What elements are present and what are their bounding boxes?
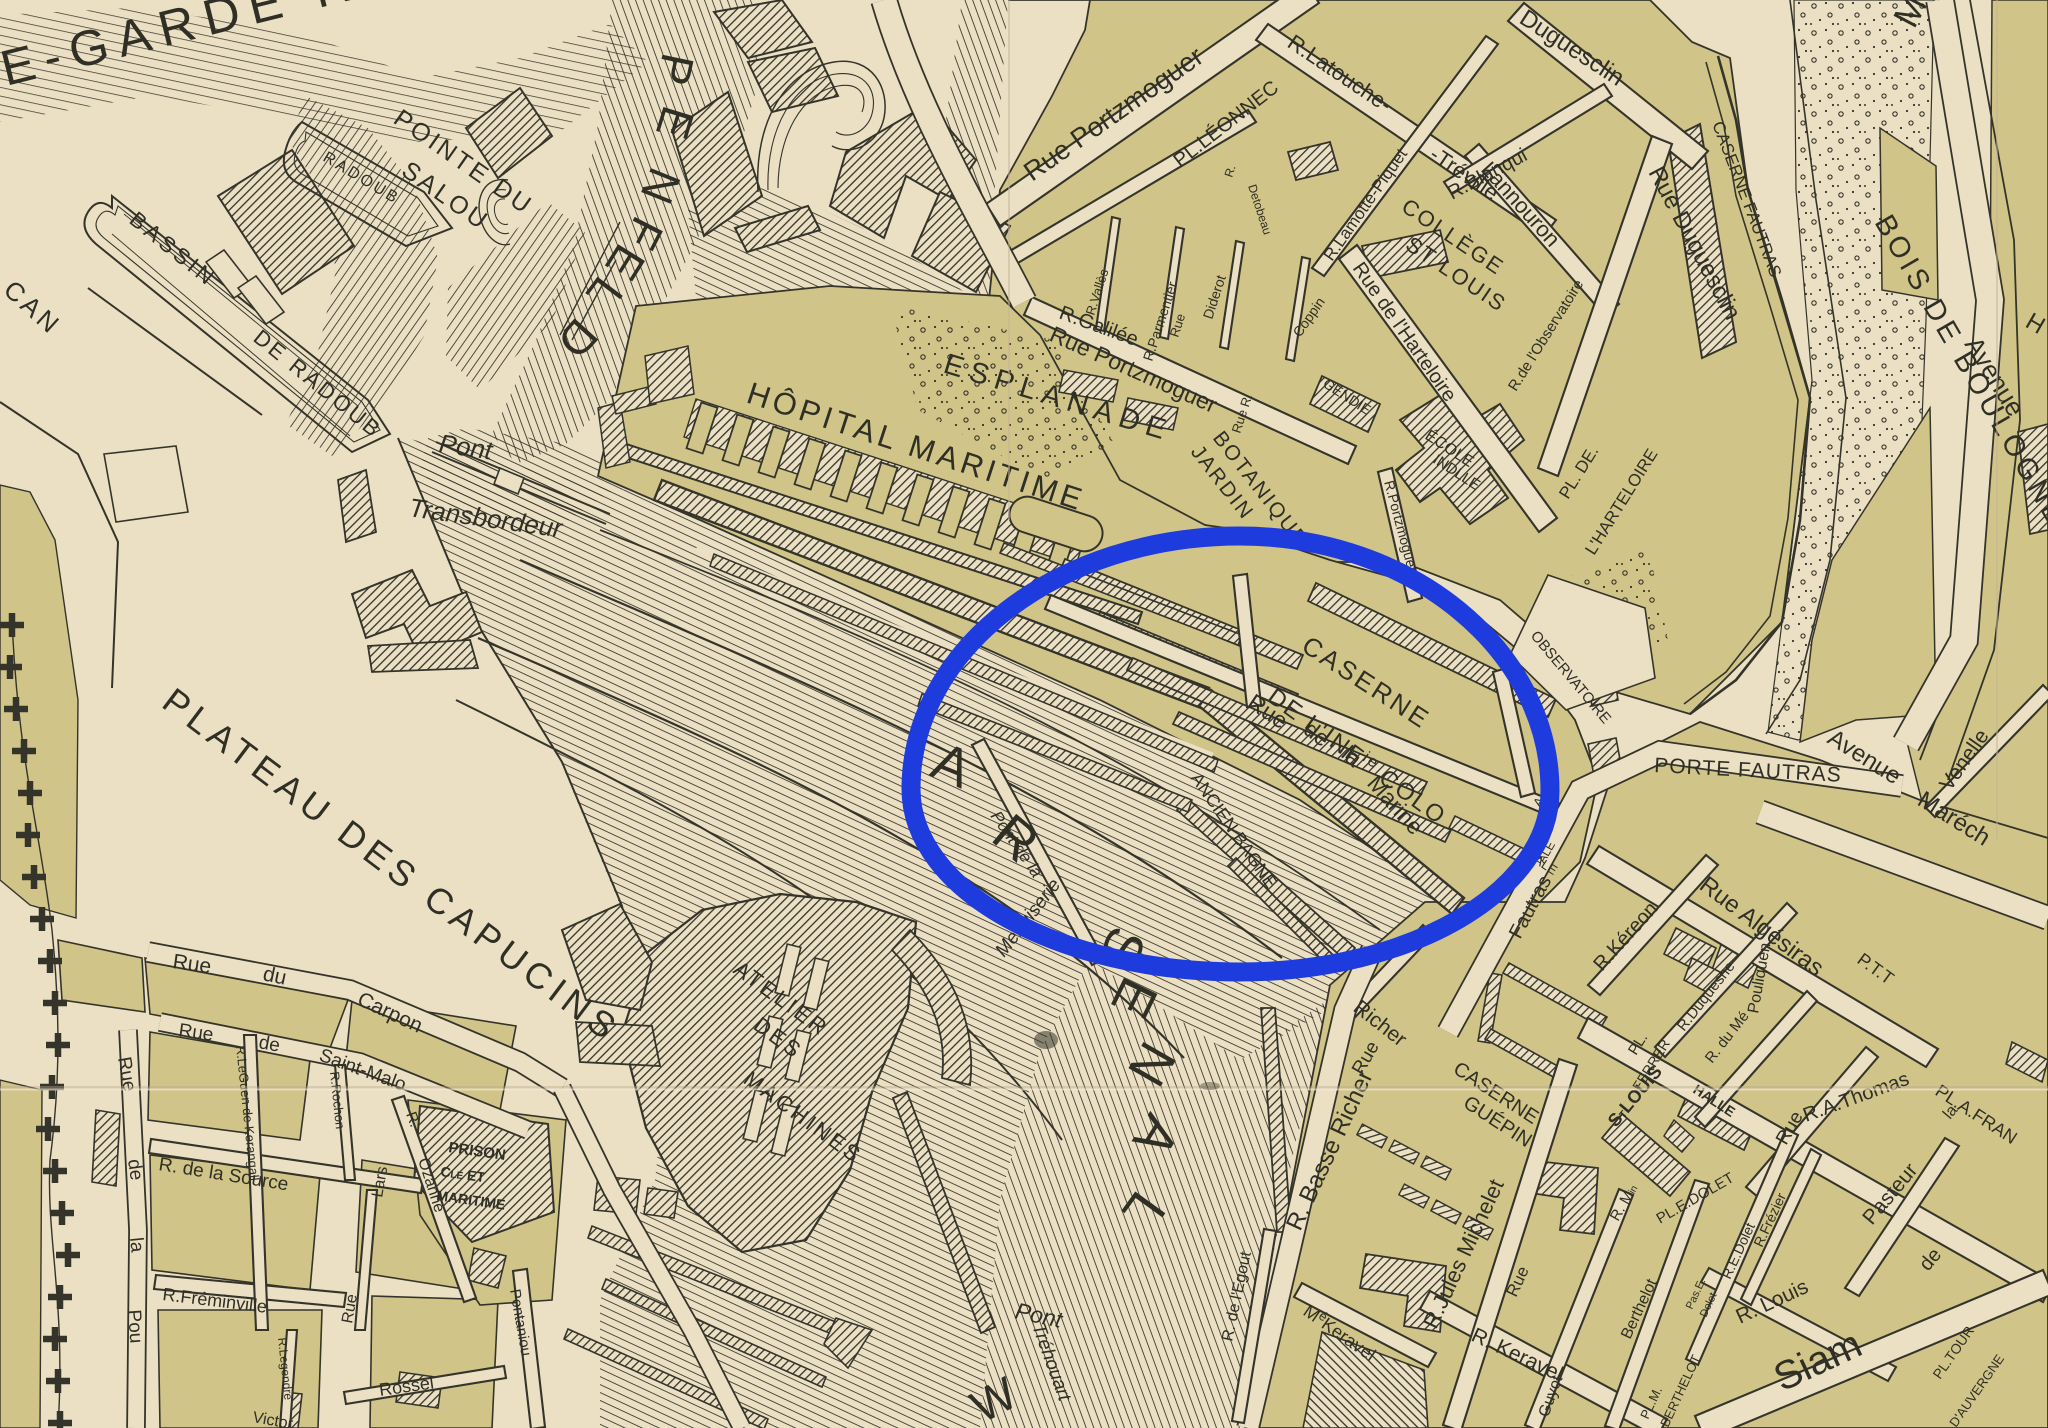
svg-text:de: de (257, 1032, 281, 1056)
svg-text:de: de (123, 1158, 147, 1182)
svg-text:du: du (261, 962, 289, 989)
svg-text:la: la (125, 1236, 147, 1253)
svg-text:Pou: Pou (123, 1309, 146, 1344)
